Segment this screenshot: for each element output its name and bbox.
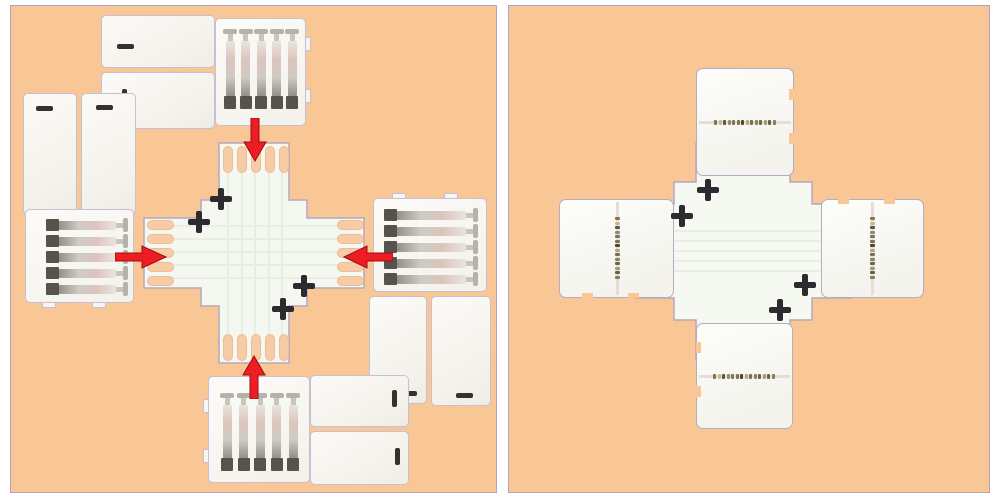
contact-dot xyxy=(870,222,875,225)
contact-dot xyxy=(615,258,620,261)
metal-pins xyxy=(384,209,478,285)
pcb-traces xyxy=(161,158,347,346)
clip-notch xyxy=(789,133,794,144)
contact-dot xyxy=(870,258,875,261)
clip-connector-bottom xyxy=(208,373,409,485)
metal-pin xyxy=(254,393,266,471)
product-image xyxy=(0,0,1000,500)
connector-tab xyxy=(92,302,106,308)
mold-mark xyxy=(96,105,113,110)
connector-tab xyxy=(203,399,209,413)
connector-tab xyxy=(305,37,311,51)
metal-pin xyxy=(271,393,283,471)
contact-dot xyxy=(768,120,771,125)
metal-pin xyxy=(384,209,478,221)
mold-mark xyxy=(117,44,134,49)
alignment-cross-mark xyxy=(272,298,294,320)
contact-dot xyxy=(731,374,734,379)
clip-notch xyxy=(838,199,849,204)
alignment-cross-mark xyxy=(769,299,791,321)
contact-dot xyxy=(870,249,875,252)
arrow-down-icon xyxy=(243,118,267,162)
contact-dot xyxy=(764,120,767,125)
mold-mark xyxy=(36,106,53,111)
clip-connector-left xyxy=(23,93,136,303)
left-panel-exploded-view xyxy=(10,5,497,493)
contact-dot xyxy=(615,249,620,252)
metal-pin xyxy=(224,29,236,109)
contact-dot xyxy=(750,120,753,125)
metal-pin xyxy=(46,219,128,231)
contact-dot xyxy=(740,374,743,379)
alignment-cross-mark xyxy=(794,274,816,296)
clip-notch xyxy=(696,342,701,353)
mold-mark xyxy=(392,390,397,407)
clip-notch xyxy=(884,199,895,204)
connector-tab xyxy=(203,449,209,463)
contact-dot xyxy=(767,374,770,379)
metal-pin xyxy=(384,257,478,269)
connector-lid-flap xyxy=(23,93,77,215)
solder-pad xyxy=(223,146,233,173)
contact-dot xyxy=(728,120,731,125)
contact-dot xyxy=(615,217,620,220)
contact-dot xyxy=(758,374,761,379)
connector-lid-flap xyxy=(81,93,136,215)
alignment-cross-mark xyxy=(697,179,719,201)
connector-lid-flap xyxy=(101,15,215,68)
contact-dot xyxy=(870,217,875,220)
contact-dot xyxy=(718,374,721,379)
strip-contact-dots xyxy=(615,217,620,279)
contact-dot xyxy=(870,276,875,279)
strip-contact-dots xyxy=(714,120,776,125)
contact-dot xyxy=(755,120,758,125)
solder-pad xyxy=(279,146,289,173)
connector-tab xyxy=(42,302,56,308)
metal-pins xyxy=(224,29,298,109)
contact-dot xyxy=(746,120,749,125)
contact-dot xyxy=(727,374,730,379)
connector-lid-flap xyxy=(310,431,409,485)
contact-dot xyxy=(615,222,620,225)
contact-dot xyxy=(870,262,875,265)
contact-dot xyxy=(763,374,766,379)
solder-pad xyxy=(147,220,174,230)
metal-pin xyxy=(384,241,478,253)
solder-pad xyxy=(337,220,364,230)
attached-clip-bottom xyxy=(696,323,793,429)
alignment-cross-mark xyxy=(293,275,315,297)
contact-dot xyxy=(615,253,620,256)
clip-notch xyxy=(789,89,794,100)
contact-dot xyxy=(615,235,620,238)
metal-pin xyxy=(287,393,299,471)
alignment-cross-mark xyxy=(210,188,232,210)
solder-pad xyxy=(223,334,233,361)
contact-dot xyxy=(870,226,875,229)
metal-pin xyxy=(384,273,478,285)
contact-dot xyxy=(615,267,620,270)
contact-dot xyxy=(870,231,875,234)
contact-dot xyxy=(737,120,740,125)
contact-dot xyxy=(615,276,620,279)
contact-dot xyxy=(870,235,875,238)
contact-dot xyxy=(745,374,748,379)
connector-pin-housing xyxy=(215,18,306,126)
attached-clip-top xyxy=(696,68,794,176)
connector-tab xyxy=(444,193,458,199)
contact-dot xyxy=(615,231,620,234)
contact-dot xyxy=(772,374,775,379)
metal-pin xyxy=(240,29,252,109)
contact-dot xyxy=(870,244,875,247)
contact-dot xyxy=(615,262,620,265)
mold-mark xyxy=(395,448,400,465)
right-panel-assembled-view xyxy=(508,5,990,493)
connector-lid-flap xyxy=(431,296,491,406)
contact-dot xyxy=(719,120,722,125)
metal-pin xyxy=(384,225,478,237)
contact-dot xyxy=(615,271,620,274)
contact-dot xyxy=(732,120,735,125)
contact-dot xyxy=(870,240,875,243)
arrow-right-icon xyxy=(115,244,167,270)
contact-dot xyxy=(723,120,726,125)
contact-dot xyxy=(615,226,620,229)
contact-dot xyxy=(754,374,757,379)
metal-pin xyxy=(46,283,128,295)
contact-dot xyxy=(741,120,744,125)
contact-dot xyxy=(736,374,739,379)
solder-pad xyxy=(337,234,364,244)
contact-dot xyxy=(870,253,875,256)
metal-pin xyxy=(286,29,298,109)
alignment-cross-mark xyxy=(671,205,693,227)
contact-dot xyxy=(722,374,725,379)
metal-pin xyxy=(221,393,233,471)
connector-tab xyxy=(392,193,406,199)
contact-dot xyxy=(713,374,716,379)
contact-dot xyxy=(870,267,875,270)
metal-pin xyxy=(255,29,267,109)
solder-pad xyxy=(265,334,275,361)
contact-dot xyxy=(615,244,620,247)
metal-pins xyxy=(221,393,299,471)
contact-dot xyxy=(773,120,776,125)
strip-contact-dots xyxy=(713,374,775,379)
arrow-up-icon xyxy=(242,355,266,399)
connector-tab xyxy=(305,89,311,103)
metal-pin xyxy=(238,393,250,471)
clip-notch xyxy=(582,293,593,298)
mold-mark xyxy=(456,393,473,398)
contact-dot xyxy=(749,374,752,379)
contact-dot xyxy=(759,120,762,125)
attached-clip-left xyxy=(559,199,674,298)
clip-notch xyxy=(696,386,701,397)
solder-pad xyxy=(147,234,174,244)
contact-dot xyxy=(615,240,620,243)
alignment-cross-mark xyxy=(188,211,210,233)
contact-dot xyxy=(870,271,875,274)
solder-pad xyxy=(147,276,174,286)
clip-notch xyxy=(628,293,639,298)
solder-pad xyxy=(279,334,289,361)
arrow-left-icon xyxy=(343,244,393,270)
solder-pad xyxy=(337,276,364,286)
strip-contact-dots xyxy=(870,217,875,279)
contact-dot xyxy=(714,120,717,125)
attached-clip-right xyxy=(821,199,924,298)
metal-pin xyxy=(271,29,283,109)
connector-lid-flap xyxy=(310,375,409,427)
